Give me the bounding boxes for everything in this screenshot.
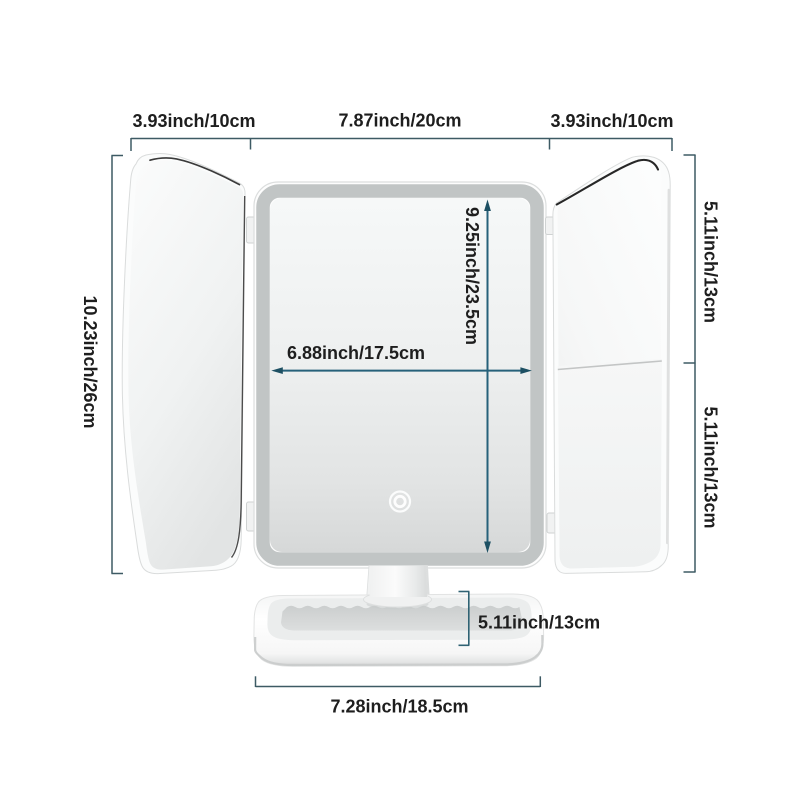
svg-text:5.11inch/13cm: 5.11inch/13cm [478,613,600,633]
svg-text:6.88inch/17.5cm: 6.88inch/17.5cm [287,343,425,363]
svg-text:3.93inch/10cm: 3.93inch/10cm [132,111,255,131]
svg-text:3.93inch/10cm: 3.93inch/10cm [550,111,673,131]
svg-text:7.28inch/18.5cm: 7.28inch/18.5cm [330,697,468,717]
svg-text:5.11inch/13cm: 5.11inch/13cm [701,406,721,528]
svg-text:5.11inch/13cm: 5.11inch/13cm [701,201,721,323]
svg-text:7.87inch/20cm: 7.87inch/20cm [338,111,461,131]
svg-text:9.25inch/23.5cm: 9.25inch/23.5cm [462,207,482,345]
svg-text:10.23inch/26cm: 10.23inch/26cm [80,295,100,428]
